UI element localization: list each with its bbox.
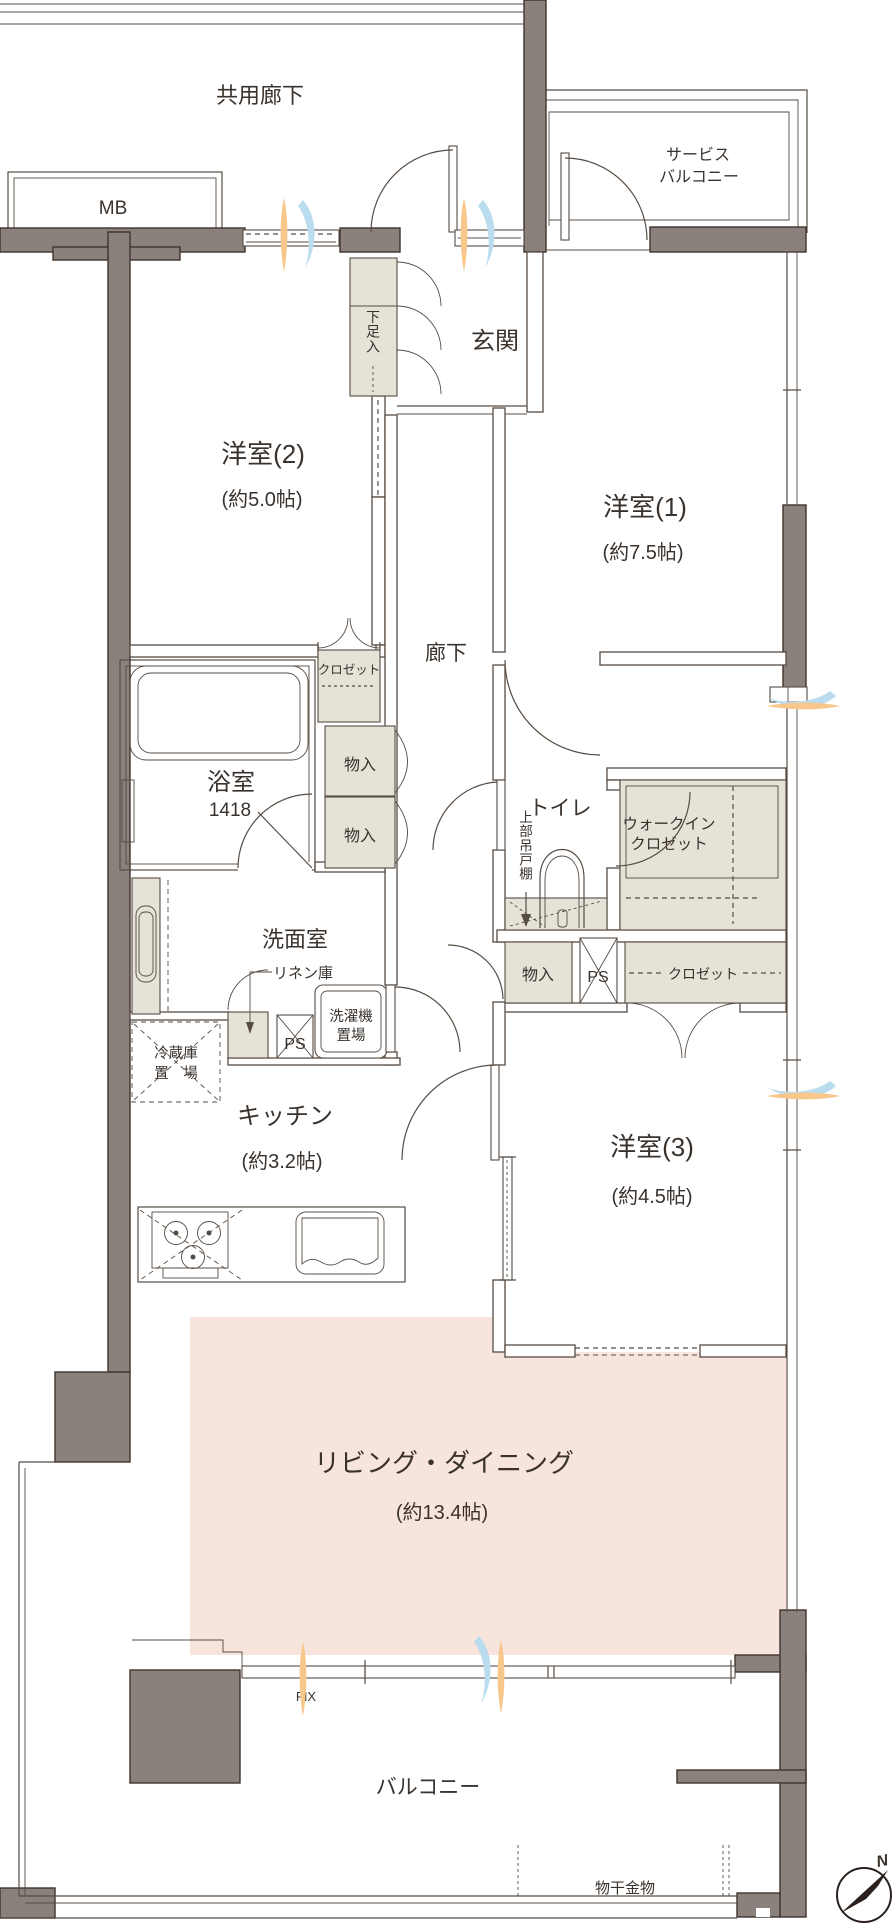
walk-in-closet: ウォークイン クロゼット bbox=[616, 780, 786, 930]
washroom-label: 洗面室 bbox=[262, 927, 328, 952]
kitchen-label: キッチン bbox=[237, 1103, 333, 1130]
pipe-space-b: PS bbox=[580, 938, 617, 1003]
compass-north-label: N bbox=[875, 1852, 890, 1871]
service-balcony-door bbox=[546, 153, 650, 250]
storage-c: 物入 bbox=[448, 942, 572, 1003]
storage-b-label: 物入 bbox=[344, 827, 376, 845]
hallway-label: 廊下 bbox=[425, 642, 467, 665]
storage-a-label: 物入 bbox=[344, 756, 376, 774]
pipe-space-a: PS bbox=[277, 1015, 313, 1058]
entrance-door bbox=[371, 146, 457, 232]
bedroom3-size: (約4.5帖) bbox=[611, 1185, 692, 1208]
genkan-label: 玄関 bbox=[471, 328, 519, 355]
storage-c-door-arc bbox=[448, 945, 503, 999]
bedroom1-label: 洋室(1) bbox=[603, 492, 687, 522]
kitchen-size: (約3.2帖) bbox=[241, 1150, 322, 1173]
entrance-porch-window bbox=[243, 230, 339, 246]
service-balcony-label-1: サービス bbox=[666, 146, 730, 164]
closet-bedroom2-label: クロゼット bbox=[318, 663, 381, 677]
room-bedroom1: 洋室(1) (約7.5帖) bbox=[505, 492, 687, 755]
meter-box-label: MB bbox=[99, 198, 128, 219]
washroom-door-arc bbox=[395, 987, 460, 1052]
laundry-hardware: 物干金物 bbox=[518, 1845, 729, 1897]
shoe-cabinet: 下足入 bbox=[350, 258, 441, 396]
fix-window-label: FIX bbox=[296, 1689, 317, 1704]
room-toilet: トイレ 上部吊戸棚 bbox=[433, 780, 607, 930]
balcony-label: バルコニー bbox=[376, 1776, 481, 1799]
closet-bedroom3-label: クロゼット bbox=[668, 966, 738, 982]
living-dining-floor bbox=[190, 1317, 786, 1655]
service-balcony: サービス バルコニー bbox=[533, 90, 807, 233]
bedroom1-size: (約7.5帖) bbox=[602, 541, 683, 564]
bedroom1-door-arc bbox=[505, 660, 600, 755]
room-bathroom: 浴室 1418 bbox=[120, 660, 315, 872]
kitchen-sink bbox=[296, 1212, 384, 1274]
closet-bedroom3: クロゼット bbox=[625, 942, 786, 1058]
shoe-cabinet-label: 下足入 bbox=[366, 309, 380, 354]
storage-b: 物入 bbox=[325, 797, 408, 868]
storage-a: 物入 bbox=[325, 726, 408, 796]
living-door bbox=[402, 1065, 499, 1160]
fridge-space: 冷蔵庫 置 場 bbox=[132, 1022, 220, 1102]
living-label: リビング・ダイニング bbox=[314, 1448, 574, 1478]
washer-space: 洗濯機 置場 bbox=[315, 985, 387, 1058]
bedroom2-size: (約5.0帖) bbox=[221, 488, 302, 511]
fridge-label-1: 冷蔵庫 bbox=[154, 1045, 198, 1062]
room-bedroom3: 洋室(3) (約4.5帖) bbox=[499, 1132, 694, 1280]
laundry-hardware-label: 物干金物 bbox=[595, 1880, 655, 1897]
washer-label-2: 置場 bbox=[337, 1027, 366, 1044]
ps-a-label: PS bbox=[284, 1036, 305, 1053]
bedroom3-label: 洋室(3) bbox=[610, 1132, 694, 1162]
meter-box: MB bbox=[8, 172, 222, 232]
floorplan-svg: 共用廊下 MB サービス バルコニー bbox=[0, 0, 896, 1928]
closet-bedroom2: クロゼット bbox=[318, 618, 381, 722]
linen-label: リネン庫 bbox=[273, 965, 333, 982]
wic-label-1: ウォークイン bbox=[622, 815, 715, 833]
bedroom3-sliding-door bbox=[499, 1157, 516, 1280]
common-corridor-label: 共用廊下 bbox=[216, 83, 304, 108]
bathroom-size: 1418 bbox=[209, 800, 251, 821]
service-balcony-label-2: バルコニー bbox=[659, 169, 739, 186]
toilet-label: トイレ bbox=[529, 797, 592, 820]
room-bedroom2: 洋室(2) (約5.0帖) bbox=[221, 439, 305, 511]
room-washroom: 洗面室 リネン庫 PS 洗濯機 置場 bbox=[132, 878, 460, 1058]
storage-c-label: 物入 bbox=[522, 966, 554, 984]
floorplan-stage: 共用廊下 MB サービス バルコニー bbox=[0, 0, 896, 1928]
upper-cabinet-label: 上部吊戸棚 bbox=[519, 810, 533, 882]
toilet-door-arc bbox=[433, 782, 497, 850]
bathroom-label: 浴室 bbox=[207, 769, 255, 796]
washer-label-1: 洗濯機 bbox=[329, 1008, 373, 1025]
common-corridor-area: 共用廊下 MB bbox=[0, 4, 524, 232]
ps-b-label: PS bbox=[587, 969, 608, 986]
kitchen-counter bbox=[138, 1207, 405, 1282]
compass: N bbox=[837, 1852, 891, 1922]
living-size: (約13.4帖) bbox=[396, 1501, 488, 1524]
bedroom2-label: 洋室(2) bbox=[221, 439, 305, 469]
washroom-door-leaf bbox=[386, 985, 395, 1052]
fridge-label-2: 置 場 bbox=[154, 1065, 198, 1082]
